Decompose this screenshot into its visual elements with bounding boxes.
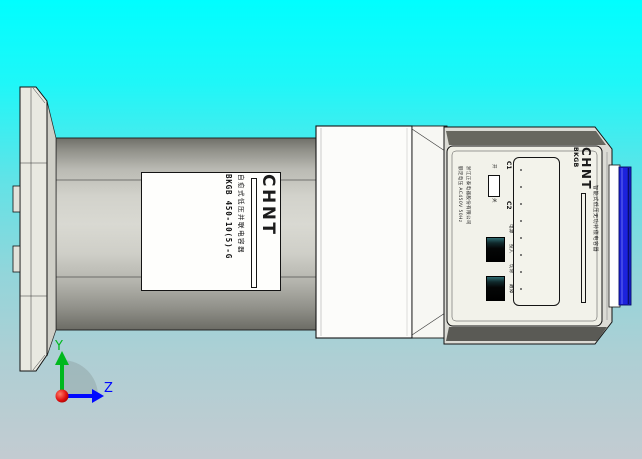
head-top-bevel	[446, 131, 606, 145]
axis-z-arrowhead	[92, 389, 104, 403]
display-window	[513, 157, 560, 306]
tick-dot	[520, 288, 522, 290]
switch-window	[488, 175, 500, 197]
axis-origin	[56, 390, 69, 403]
indicator-label: 投入	[505, 244, 512, 256]
manufacturer-fine-print: 浙江正泰电器股份有限公司 额定电压 AC450V 50Hz	[456, 166, 471, 302]
cylinder-nameplate: CHNT 自愈式低压并联电容器 BKGB 450-10(5)-G	[141, 172, 281, 291]
tick-dot	[520, 220, 522, 222]
switch-mark-top: 开	[489, 164, 495, 173]
3d-viewport[interactable]: Y Z CHNT 自愈式低压并联电容器 BKGB 450-10(5)-G 智能式…	[0, 0, 642, 459]
switch-mark-bottom: 关	[489, 198, 495, 207]
head-housing-side	[316, 126, 447, 338]
terminal-block	[609, 165, 631, 307]
tick-dot	[520, 237, 522, 239]
nameplate-brand: CHNT	[259, 174, 276, 287]
axis-y-label: Y	[54, 339, 63, 354]
panel-subtitle: 智能式低压无功补偿电容器	[592, 185, 598, 303]
mounting-flange	[13, 87, 56, 371]
panel-button-upper	[486, 237, 505, 262]
indicator-label: 电源	[505, 224, 512, 236]
brand-underline	[251, 178, 257, 288]
indicator-c1: C1	[503, 161, 511, 175]
maker-line1: 浙江正泰电器股份有限公司	[463, 166, 471, 302]
axis-z-label: Z	[104, 381, 113, 396]
tick-dot	[520, 186, 522, 188]
nameplate-model: BKGB 450-10(5)-G	[224, 174, 233, 287]
head-bottom-bevel	[446, 327, 607, 341]
tick-dot	[520, 203, 522, 205]
indicator-label: 切除	[505, 264, 512, 276]
panel-brand: CHNT	[580, 147, 592, 190]
panel-button-lower	[486, 276, 505, 301]
flange-tab-lower	[13, 246, 20, 272]
nameplate-product: 自愈式低压并联电容器	[237, 174, 247, 287]
panel-brand-block: 智能式低压无功补偿电容器 CHNT BKGB	[566, 147, 598, 303]
indicator-label: 故障	[505, 284, 512, 296]
panel-series: BKGB	[572, 147, 578, 303]
tick-dot	[520, 254, 522, 256]
tick-dot	[520, 271, 522, 273]
indicator-c2: C2	[503, 201, 511, 215]
panel-brand-underline	[581, 193, 586, 303]
maker-line2: 额定电压 AC450V 50Hz	[456, 166, 464, 302]
tick-dot	[520, 169, 522, 171]
axis-triad: Y Z	[54, 339, 113, 403]
flange-tab-upper	[13, 186, 20, 212]
